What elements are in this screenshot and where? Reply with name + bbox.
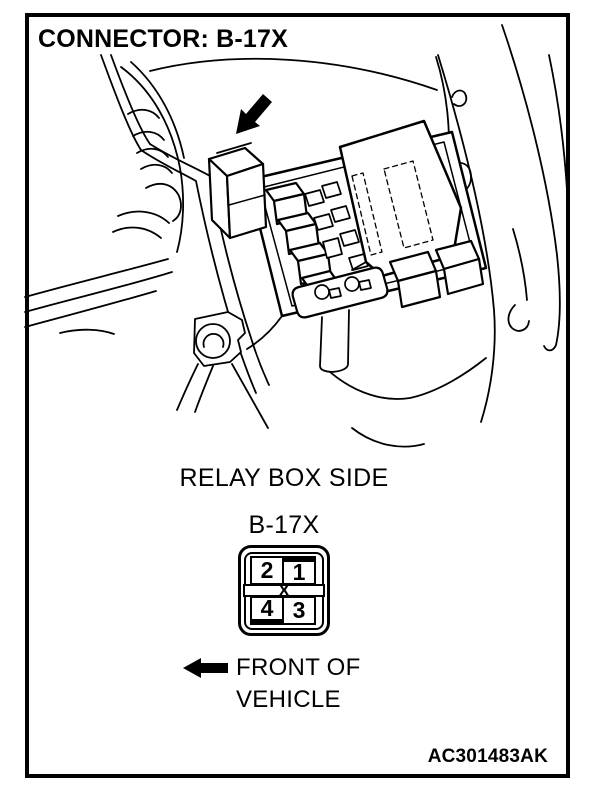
pin-cell-4: 4 — [250, 596, 284, 625]
pin-cell-3: 3 — [282, 596, 316, 625]
front-of-vehicle-label-line1: FRONT OF — [236, 654, 361, 682]
pin-diagram-inner: 2 1 X 4 3 — [244, 552, 324, 630]
connector-id-label: B-17X — [0, 511, 568, 540]
front-of-vehicle-label-line2: VEHICLE — [236, 686, 341, 714]
pin-diagram: 2 1 X 4 3 — [238, 545, 330, 636]
key-band: X — [243, 584, 325, 597]
pin-row-bottom: 4 3 — [250, 596, 318, 625]
front-of-vehicle-arrow-icon — [183, 658, 229, 679]
connector-block — [209, 143, 266, 238]
connector-callout-arrow — [236, 94, 272, 134]
figure-code: AC301483AK — [0, 746, 548, 768]
figure-page: CONNECTOR: B-17X — [0, 0, 608, 790]
relay-box-side-label: RELAY BOX SIDE — [0, 464, 568, 493]
